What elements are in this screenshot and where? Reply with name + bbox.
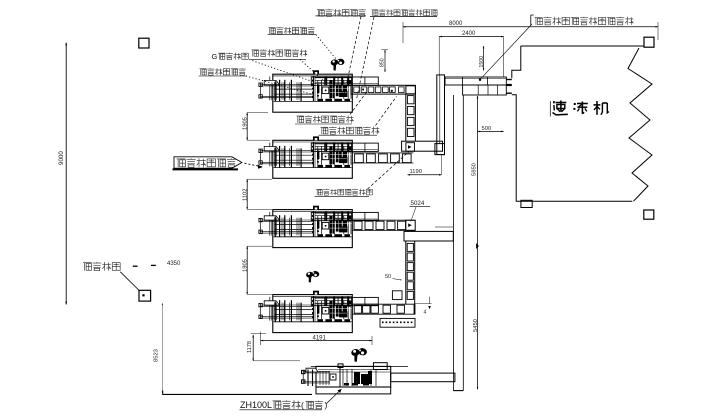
svg-text:ZH100L: ZH100L <box>240 400 272 410</box>
svg-text:5450: 5450 <box>473 319 479 332</box>
svg-text:1905: 1905 <box>242 117 248 130</box>
svg-text:G: G <box>212 52 218 61</box>
svg-text:1905: 1905 <box>242 259 248 272</box>
svg-text:1102: 1102 <box>242 189 248 201</box>
svg-text:500: 500 <box>482 126 492 132</box>
svg-text:8523: 8523 <box>154 349 160 362</box>
svg-text:4: 4 <box>424 310 427 316</box>
svg-text:1178: 1178 <box>247 341 253 353</box>
svg-text:2400: 2400 <box>462 31 476 37</box>
svg-text:1190: 1190 <box>410 169 422 175</box>
svg-text:(: ( <box>301 400 304 410</box>
svg-text:5850: 5850 <box>472 163 478 176</box>
svg-text:): ) <box>325 400 328 410</box>
svg-text:1500: 1500 <box>479 56 485 68</box>
svg-text:8000: 8000 <box>449 21 463 27</box>
svg-text:5024: 5024 <box>411 200 425 207</box>
svg-text:4191: 4191 <box>313 335 327 341</box>
svg-text:4350: 4350 <box>167 261 181 267</box>
svg-text:850: 850 <box>379 58 385 67</box>
svg-text:9000: 9000 <box>58 151 65 165</box>
svg-text:50: 50 <box>385 274 391 280</box>
